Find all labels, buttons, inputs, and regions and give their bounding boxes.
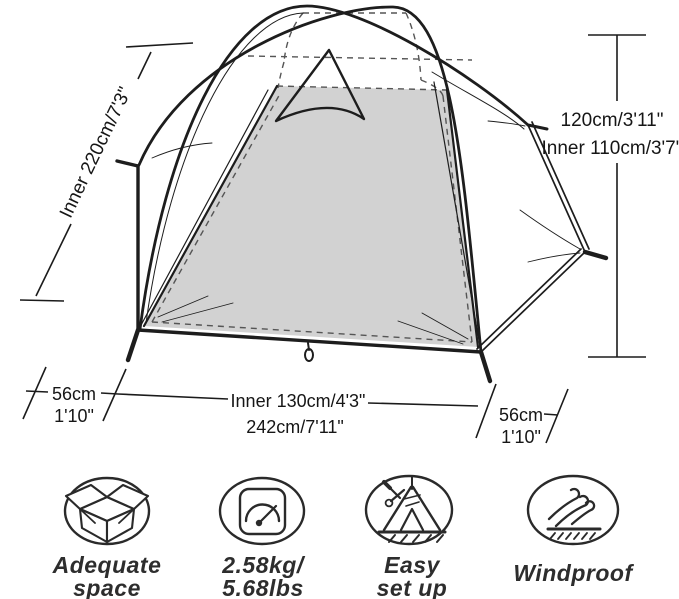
dim-bottom-width: 56cm 1'10" Inner 130cm/4'3" 242cm/7'11" …: [23, 367, 568, 447]
open-box-icon: [65, 478, 149, 544]
dim-height-label: 120cm/3'11": [561, 110, 664, 131]
dim-left-diagonal: Inner 220cm/7'3": [20, 43, 193, 301]
feature-label: Windproof: [513, 560, 634, 586]
dim-left-vestibule-ft-label: 1'10": [54, 406, 94, 426]
dim-inner-height-label: Inner 110cm/3'7": [542, 138, 679, 159]
feature-easy-setup: Easy set up: [366, 476, 452, 599]
feature-weight: 2.58kg/ 5.68lbs: [220, 478, 306, 599]
dim-right-height: 120cm/3'11" Inner 110cm/3'7": [542, 35, 679, 357]
feature-label: 5.68lbs: [222, 575, 304, 599]
dim-left-label: Inner 220cm/7'3": [56, 84, 136, 222]
zipper-pull: [305, 343, 313, 361]
tent-dimension-diagram: Inner 220cm/7'3" 120cm/3'11" Inner 110cm…: [0, 0, 679, 599]
product-diagram-page: Inner 220cm/7'3" 120cm/3'11" Inner 110cm…: [0, 0, 679, 599]
dim-total-width-label: 242cm/7'11": [246, 417, 344, 437]
dim-right-vestibule-cm-label: 56cm: [499, 405, 543, 425]
feature-list: Adequate space 2.58kg/ 5.68lbs: [52, 476, 635, 599]
feature-windproof: Windproof: [513, 476, 634, 586]
feature-label: set up: [377, 575, 448, 599]
tent-floor-panel: [144, 86, 478, 347]
tent-illustration: [117, 6, 606, 381]
dim-inner-width-label: Inner 130cm/4'3": [231, 391, 366, 411]
dim-left-vestibule-cm-label: 56cm: [52, 384, 96, 404]
dim-right-vestibule-ft-label: 1'10": [501, 427, 541, 447]
feature-adequate-space: Adequate space: [52, 478, 162, 599]
tent-setup-icon: [366, 476, 452, 544]
feature-label: space: [73, 575, 141, 599]
windproof-icon: [528, 476, 618, 544]
weight-scale-icon: [220, 478, 304, 544]
